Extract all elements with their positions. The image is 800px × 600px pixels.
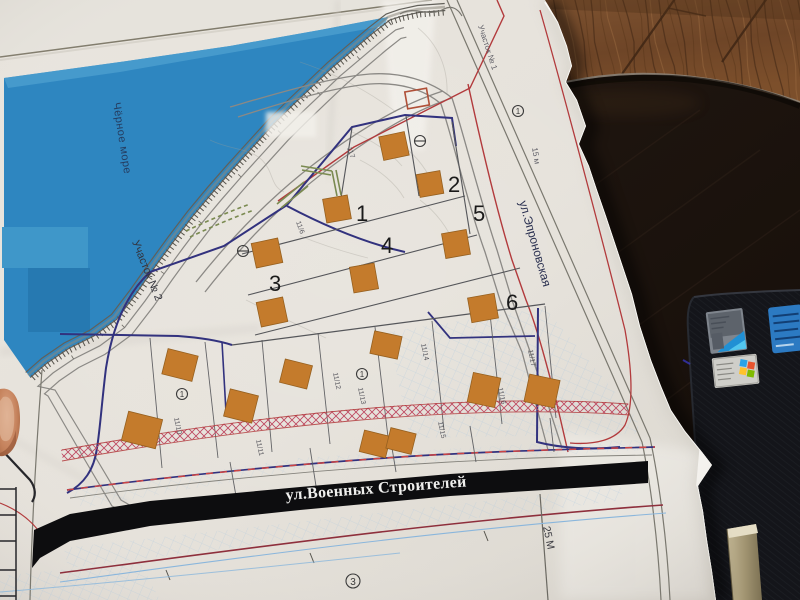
svg-text:4: 4	[381, 233, 393, 258]
svg-text:2: 2	[448, 172, 460, 197]
svg-text:5: 5	[473, 201, 485, 226]
svg-text:3: 3	[269, 271, 281, 296]
svg-text:1: 1	[180, 390, 185, 399]
svg-text:1: 1	[356, 201, 368, 226]
svg-text:6: 6	[506, 290, 518, 315]
svg-text:1: 1	[360, 370, 365, 379]
svg-text:3: 3	[350, 577, 356, 588]
svg-text:1: 1	[516, 107, 521, 116]
